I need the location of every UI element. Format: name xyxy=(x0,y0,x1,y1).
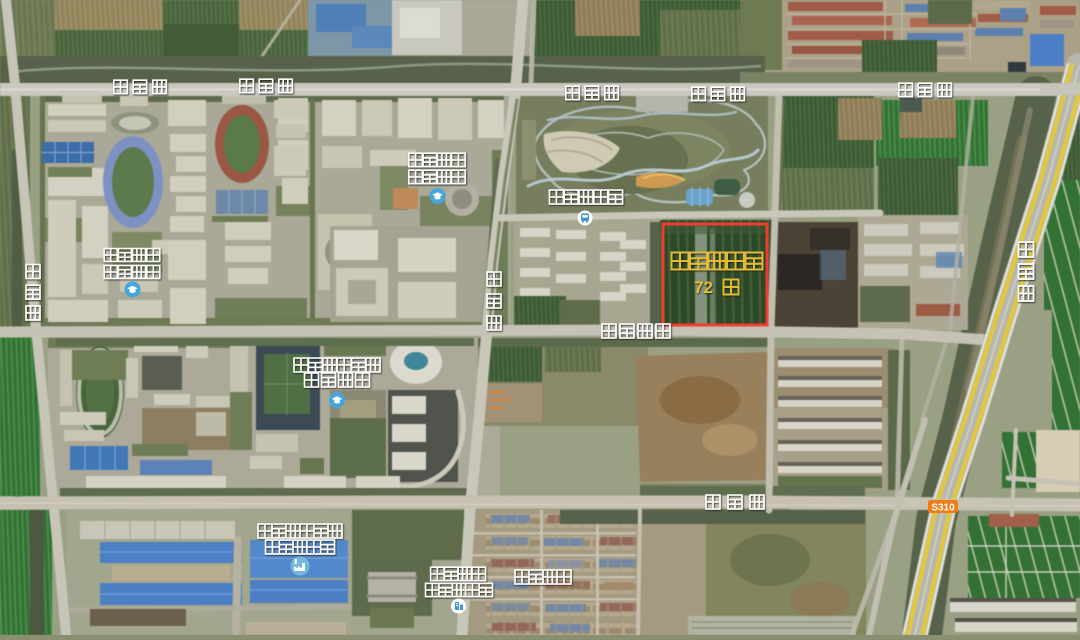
svg-text:72: 72 xyxy=(694,278,713,297)
svg-text:S310: S310 xyxy=(931,503,955,514)
